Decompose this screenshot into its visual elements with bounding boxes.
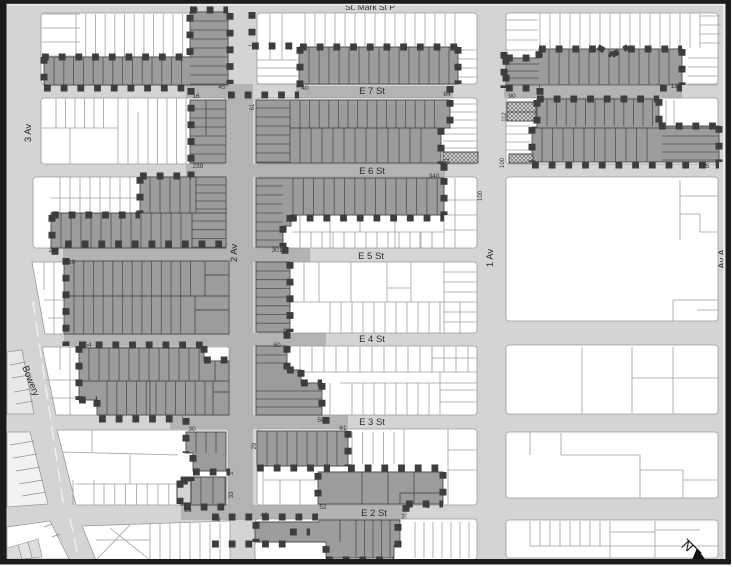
svg-text:1: 1 bbox=[44, 84, 48, 91]
svg-text:40: 40 bbox=[301, 85, 309, 92]
svg-text:45: 45 bbox=[218, 84, 226, 91]
svg-text:84: 84 bbox=[443, 91, 451, 98]
svg-text:9: 9 bbox=[283, 328, 287, 335]
svg-text:E 3 St: E 3 St bbox=[359, 417, 385, 428]
svg-text:E 7 St: E 7 St bbox=[359, 86, 385, 97]
svg-text:E 2 St: E 2 St bbox=[361, 508, 387, 519]
svg-text:247: 247 bbox=[49, 247, 60, 254]
svg-text:112: 112 bbox=[502, 112, 508, 122]
svg-text:2 Av: 2 Av bbox=[229, 244, 240, 263]
svg-text:54: 54 bbox=[84, 342, 92, 349]
svg-text:50: 50 bbox=[317, 417, 325, 424]
svg-text:310: 310 bbox=[65, 259, 76, 266]
svg-text:6: 6 bbox=[194, 6, 198, 13]
svg-text:60: 60 bbox=[273, 342, 281, 349]
svg-text:1 Av: 1 Av bbox=[485, 249, 496, 268]
svg-text:340: 340 bbox=[429, 173, 440, 180]
svg-text:90: 90 bbox=[508, 93, 516, 100]
svg-text:42: 42 bbox=[260, 512, 268, 519]
svg-text:52: 52 bbox=[319, 504, 327, 511]
svg-text:9: 9 bbox=[507, 84, 511, 91]
svg-text:7: 7 bbox=[401, 514, 405, 521]
svg-text:29: 29 bbox=[252, 442, 258, 449]
svg-text:100: 100 bbox=[478, 190, 484, 201]
svg-text:30: 30 bbox=[188, 426, 196, 433]
svg-text:239: 239 bbox=[193, 163, 204, 170]
svg-text:E 4 St: E 4 St bbox=[359, 334, 385, 345]
svg-text:E 5 St: E 5 St bbox=[358, 251, 384, 262]
svg-text:145: 145 bbox=[699, 163, 710, 170]
svg-text:3 Av: 3 Av bbox=[23, 124, 34, 143]
svg-text:16: 16 bbox=[192, 93, 200, 100]
svg-text:61: 61 bbox=[250, 103, 256, 110]
svg-text:8: 8 bbox=[426, 503, 430, 510]
svg-text:121: 121 bbox=[671, 83, 682, 90]
svg-text:26: 26 bbox=[184, 507, 192, 514]
svg-text:100: 100 bbox=[500, 157, 506, 168]
svg-text:E 6 St: E 6 St bbox=[359, 166, 385, 177]
svg-text:43: 43 bbox=[213, 516, 221, 523]
svg-text:81: 81 bbox=[445, 157, 451, 164]
svg-text:301: 301 bbox=[272, 247, 283, 254]
svg-text:61: 61 bbox=[339, 425, 347, 432]
svg-text:33: 33 bbox=[229, 491, 235, 498]
